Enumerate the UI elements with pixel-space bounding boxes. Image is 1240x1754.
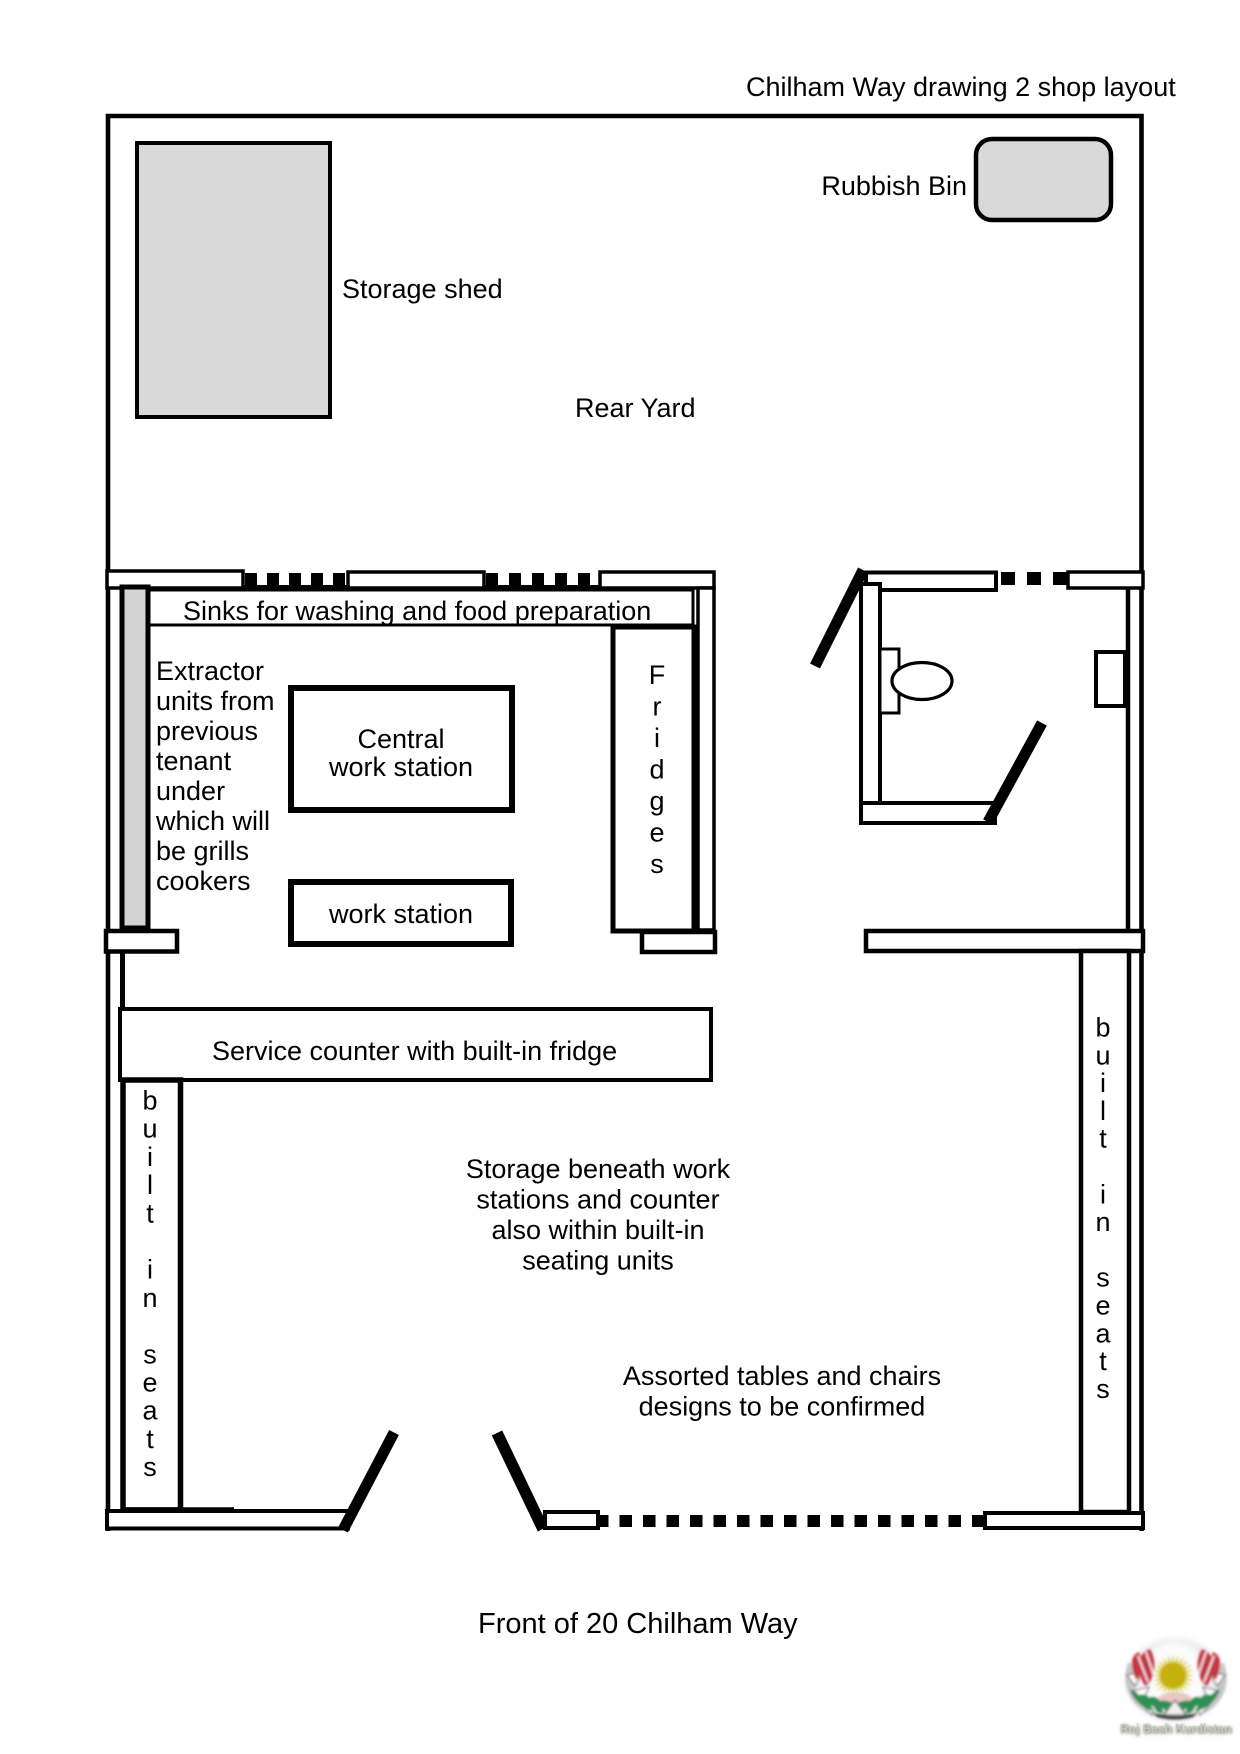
svg-text:i: i (1100, 1179, 1106, 1209)
svg-text:u: u (142, 1114, 157, 1144)
svg-text:a: a (1095, 1318, 1111, 1348)
svg-text:under: under (156, 776, 225, 806)
svg-text:s: s (1096, 1263, 1110, 1293)
svg-text:designs to be confirmed: designs to be confirmed (639, 1392, 926, 1422)
svg-text:s: s (143, 1339, 157, 1369)
svg-text:Service counter with built-in: Service counter with built-in fridge (212, 1036, 617, 1066)
svg-text:be grills: be grills (156, 836, 249, 866)
svg-text:i: i (147, 1255, 153, 1285)
svg-text:e: e (649, 818, 664, 848)
svg-text:e: e (142, 1368, 157, 1398)
svg-text:g: g (649, 786, 664, 816)
svg-text:n: n (1095, 1207, 1110, 1237)
svg-text:i: i (654, 723, 660, 753)
svg-text:tenant: tenant (156, 746, 232, 776)
svg-text:i: i (1100, 1068, 1106, 1098)
svg-text:s: s (143, 1452, 157, 1482)
svg-text:Storage beneath work: Storage beneath work (466, 1154, 731, 1184)
svg-text:e: e (1095, 1291, 1110, 1321)
svg-text:stations and counter: stations and counter (476, 1185, 719, 1215)
svg-text:previous: previous (156, 716, 258, 746)
svg-text:also within built-in: also within built-in (491, 1215, 704, 1245)
svg-text:d: d (649, 755, 664, 785)
svg-text:a: a (142, 1396, 158, 1426)
svg-text:work station: work station (328, 899, 473, 929)
svg-text:Central: Central (357, 724, 444, 754)
svg-text:units from: units from (156, 686, 275, 716)
svg-text:Rear Yard: Rear Yard (575, 393, 696, 423)
svg-text:Rubbish Bin: Rubbish Bin (821, 171, 967, 201)
svg-text:Chilham Way drawing 2 shop lay: Chilham Way drawing 2 shop layout (746, 72, 1176, 102)
svg-text:i: i (147, 1142, 153, 1172)
svg-text:l: l (1100, 1096, 1106, 1126)
svg-text:s: s (650, 849, 664, 879)
svg-text:u: u (1095, 1040, 1110, 1070)
svg-text:t: t (1099, 1124, 1107, 1154)
svg-text:Sinks for washing and food pre: Sinks for washing and food preparation (183, 596, 651, 626)
svg-text:Extractor: Extractor (156, 656, 264, 686)
svg-text:b: b (142, 1086, 157, 1116)
svg-text:Assorted tables and chairs: Assorted tables and chairs (623, 1361, 941, 1391)
svg-text:F: F (649, 660, 666, 690)
svg-text:s: s (1096, 1374, 1110, 1404)
svg-text:l: l (147, 1170, 153, 1200)
svg-text:t: t (146, 1424, 154, 1454)
svg-text:t: t (1099, 1346, 1107, 1376)
svg-text:b: b (1095, 1013, 1110, 1043)
svg-text:Storage shed: Storage shed (342, 274, 503, 304)
svg-text:Roj Bash Kurdistan: Roj Bash Kurdistan (1120, 1722, 1231, 1736)
svg-text:t: t (146, 1198, 154, 1228)
svg-text:work station: work station (328, 752, 473, 782)
svg-text:Front of 20 Chilham Way: Front of 20 Chilham Way (478, 1608, 798, 1640)
svg-text:cookers: cookers (156, 866, 251, 896)
svg-text:r: r (653, 692, 662, 722)
svg-text:n: n (142, 1283, 157, 1313)
svg-text:seating units: seating units (522, 1246, 674, 1276)
svg-text:which will: which will (155, 806, 270, 836)
